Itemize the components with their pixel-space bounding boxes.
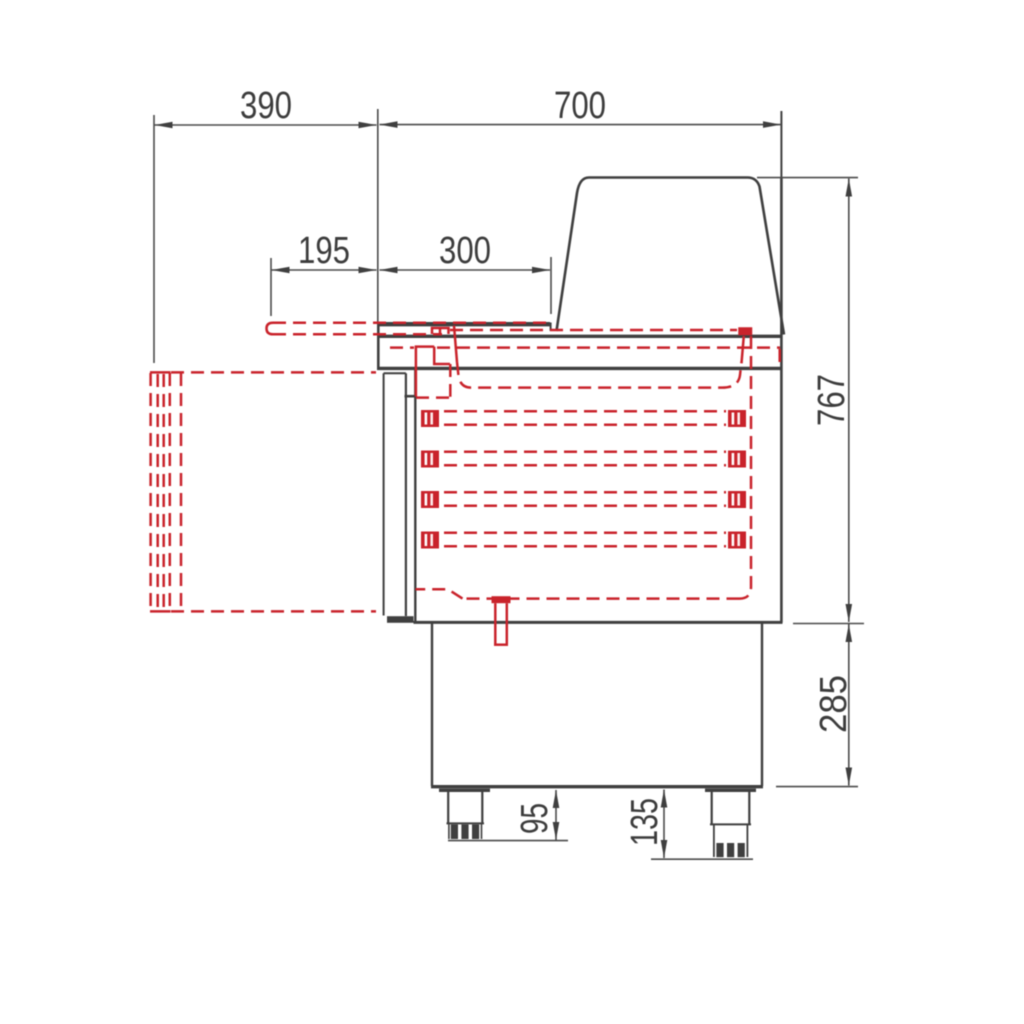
svg-text:285: 285 [813, 675, 855, 733]
svg-text:195: 195 [298, 230, 350, 272]
svg-text:700: 700 [554, 85, 606, 127]
svg-text:300: 300 [439, 230, 491, 272]
svg-text:390: 390 [240, 85, 292, 127]
svg-text:767: 767 [811, 374, 853, 426]
svg-text:95: 95 [514, 803, 556, 834]
svg-text:135: 135 [624, 798, 666, 846]
